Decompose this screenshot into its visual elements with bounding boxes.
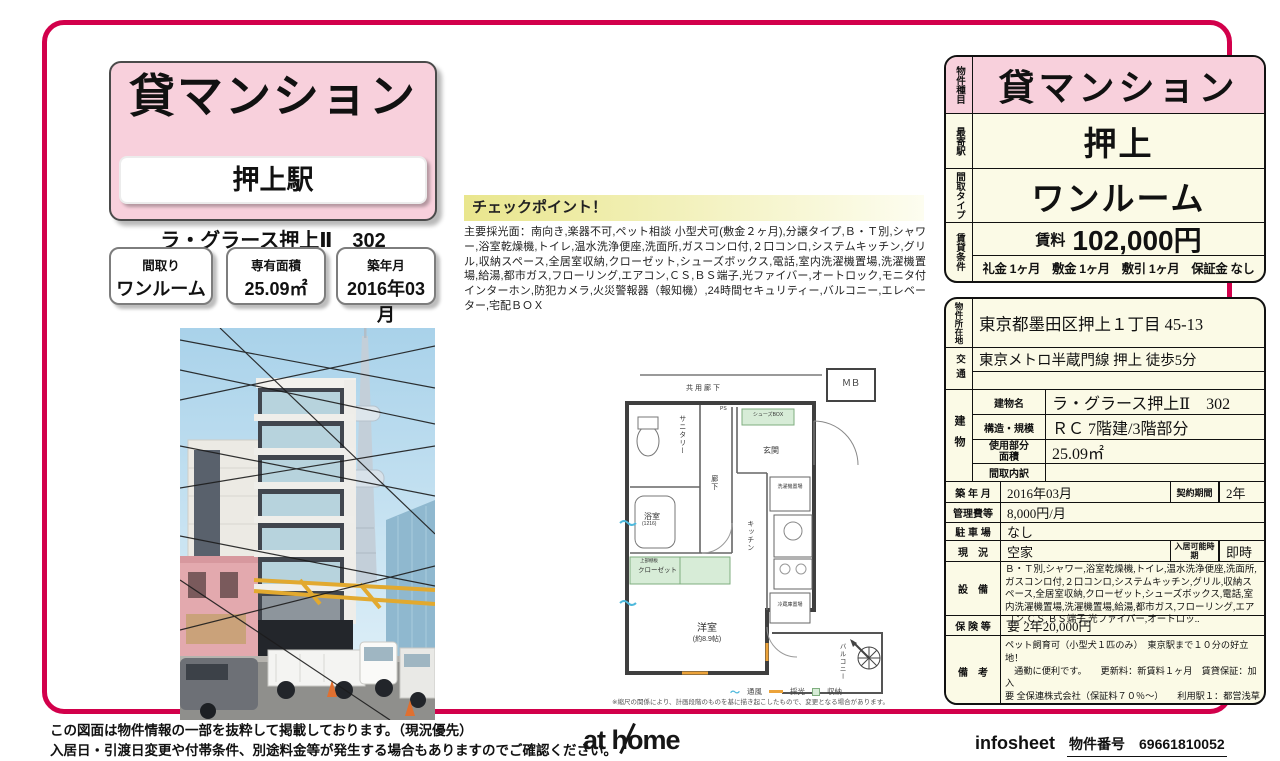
- row-label: 建物: [946, 390, 973, 481]
- fp-room-size-label: (約8.9帖): [677, 636, 737, 644]
- fp-fridge-label: 冷蔵庫置場: [771, 603, 809, 609]
- row-label: 賃貸条件: [946, 223, 973, 281]
- checkpoint-title: チェックポイント！: [464, 195, 924, 221]
- row-status: 現 況 空家 入居可能時期 即時: [946, 540, 1264, 561]
- content-frame: 貸マンション 押上駅 ラ・グラース押上Ⅱ 302 間取り ワンルーム 専有面積 …: [42, 20, 1232, 714]
- fp-shoebox-label: シューズBOX: [744, 413, 792, 419]
- athome-logo: at home: [583, 725, 680, 756]
- building-photo-art: [180, 328, 435, 720]
- spec-label: 専有面積: [228, 255, 324, 274]
- spec-box-area: 専有面積 25.09㎡: [226, 247, 326, 305]
- row-label: 交通: [946, 348, 973, 389]
- spec-box-layout: 間取り ワンルーム: [109, 247, 213, 305]
- property-number: 物件番号 69661810052: [1067, 734, 1227, 757]
- row-property-type: 物件種目 貸マンション: [946, 57, 1264, 113]
- fp-note: ※縮尺の関係により、計画段階のものを基に描き起こしたもので、変更となる場合があり…: [612, 696, 900, 706]
- rent-line: 賃料 102,000円: [973, 223, 1264, 255]
- structure-value: ＲＣ 7階建/3階部分: [1046, 415, 1264, 439]
- rent-value: 102,000円: [1072, 219, 1201, 259]
- row-label: 最寄駅: [946, 114, 973, 168]
- contract-value: 2年: [1219, 482, 1264, 502]
- terms-value: 礼金 1ヶ月 敷金 1ヶ月 敷引 1ヶ月 保証金 なし: [973, 255, 1264, 280]
- floorplan-drawing: [582, 355, 902, 707]
- infosheet-line: infosheet 物件番号 69661810052: [975, 733, 1227, 757]
- spec-value: 25.09㎡: [228, 275, 324, 301]
- location-value: 東京都墨田区押上１丁目 45-13: [973, 299, 1203, 347]
- insurance-value: 要 2年20,000円: [1001, 616, 1264, 635]
- daylight-icon: [769, 690, 783, 693]
- fp-bath-size-label: (1216): [642, 522, 656, 528]
- row-equipment: 設 備 Ｂ・Ｔ別,シャワー,浴室乾燥機,トイレ,温水洗浄便座,洗面所,ガスコンロ…: [946, 561, 1264, 615]
- movein-label: 入居可能時期: [1171, 541, 1219, 561]
- spec-value: ワンルーム: [111, 275, 211, 301]
- insurance-label: 保 険 等: [946, 616, 1001, 635]
- remarks-value: ペット飼育可（小型犬１匹のみ） 東京駅まで１０分の好立地！ 通勤に便利です。 更…: [1001, 636, 1264, 705]
- row-layout-type: 間取タイプ ワンルーム: [946, 168, 1264, 222]
- layout-detail-value: [1046, 464, 1264, 481]
- spec-label: 築年月: [338, 255, 434, 274]
- parking-value: なし: [1001, 523, 1264, 540]
- row-rental-terms: 賃貸条件 賃料 102,000円 礼金 1ヶ月 敷金 1ヶ月 敷引 1ヶ月 保証…: [946, 222, 1264, 281]
- row-label: 物件所在地: [946, 299, 973, 347]
- equipment-value: Ｂ・Ｔ別,シャワー,浴室乾燥機,トイレ,温水洗浄便座,洗面所,ガスコンロ付,２口…: [1001, 562, 1264, 615]
- area-value: 25.09㎡: [1046, 440, 1264, 463]
- building-name-value: ラ・グラース押上Ⅱ 302: [1046, 390, 1264, 414]
- movein-value: 即時: [1219, 541, 1264, 561]
- spec-value: 2016年03月: [338, 275, 434, 327]
- checkpoint-body: 主要採光面：南向き,楽器不可,ペット相談 小型犬可(敷金２ヶ月),分譲タイプ,Ｂ…: [464, 225, 926, 314]
- structure-label: 構造・規模: [973, 415, 1046, 439]
- remarks-label: 備 考: [946, 636, 1001, 705]
- property-type-title: 貸マンション: [111, 70, 435, 122]
- transport-value-1: 東京メトロ半蔵門線 押上 徒歩5分: [973, 348, 1264, 371]
- fp-closet-upper-label: 上部棚板: [640, 559, 658, 564]
- transport-value-2: [973, 372, 1264, 389]
- row-mgmt-fee: 管理費等 8,000円/月: [946, 502, 1264, 522]
- fp-entrance-label: 玄関: [763, 447, 779, 456]
- property-number-value: 69661810052: [1139, 736, 1225, 752]
- row-label: 間取タイプ: [946, 169, 973, 222]
- building-name-label: 建物名: [973, 390, 1046, 414]
- fp-laundry-label: 洗濯機置場: [771, 485, 809, 491]
- contract-label: 契約期間: [1171, 482, 1219, 502]
- row-built: 築 年 月 2016年03月 契約期間 2年: [946, 481, 1264, 502]
- station-banner: 押上駅: [119, 156, 427, 204]
- spec-label: 間取り: [111, 255, 211, 274]
- property-number-label: 物件番号: [1069, 736, 1125, 752]
- spec-box-built: 築年月 2016年03月: [336, 247, 436, 305]
- building-photo: [180, 328, 435, 720]
- row-parking: 駐 車 場 なし: [946, 522, 1264, 540]
- detail-table: 物件所在地 東京都墨田区押上１丁目 45-13 交通 東京メトロ半蔵門線 押上 …: [944, 297, 1266, 705]
- fp-sanitary-label: サニタリー: [678, 415, 686, 455]
- row-building: 建物 建物名 ラ・グラース押上Ⅱ 302 構造・規模 ＲＣ 7階建/3階部分 使…: [946, 389, 1264, 481]
- built-label: 築 年 月: [946, 482, 1001, 502]
- built-value: 2016年03月: [1001, 482, 1171, 502]
- fp-closet-label: クローゼット: [638, 567, 677, 574]
- storage-icon: [812, 688, 820, 696]
- fp-kitchen-label: キッチン: [746, 520, 754, 552]
- row-nearest-station: 最寄駅 押上: [946, 113, 1264, 168]
- equipment-label: 設 備: [946, 562, 1001, 615]
- layout-detail-label: 間取内訳: [973, 464, 1046, 481]
- footer-disclaimer: この図面は物件情報の一部を抜粋して掲載しております。（現況優先） 入居日・引渡日…: [50, 721, 617, 760]
- fp-mb-label: ＭＢ: [827, 379, 875, 389]
- disclaimer-line-2: 入居日・引渡日変更や付帯条件、別途料金等が発生する場合もありますのでご確認くださ…: [50, 741, 617, 761]
- infosheet-wordmark: infosheet: [975, 733, 1055, 754]
- mgmt-label: 管理費等: [946, 503, 1001, 522]
- layout-value: ワンルーム: [973, 169, 1264, 222]
- fp-room-label: 洋室: [677, 623, 737, 634]
- row-label: 物件種目: [946, 57, 973, 113]
- area-label: 使用部分面積: [973, 440, 1046, 463]
- summary-table: 物件種目 貸マンション 最寄駅 押上 間取タイプ ワンルーム 賃貸条件 賃料 1…: [944, 55, 1266, 283]
- status-value: 空家: [1001, 541, 1171, 561]
- mgmt-value: 8,000円/月: [1001, 503, 1264, 522]
- row-remarks: 備 考 ペット飼育可（小型犬１匹のみ） 東京駅まで１０分の好立地！ 通勤に便利で…: [946, 635, 1264, 705]
- station-value: 押上: [973, 114, 1264, 168]
- fp-balcony-label: バルコニー: [838, 643, 845, 681]
- floorplan: 共用廊下 ＭＢ サニタリー 玄関 シューズBOX 浴室 (1216) 廊下 キッ…: [582, 355, 902, 707]
- status-label: 現 況: [946, 541, 1001, 561]
- property-type-value: 貸マンション: [973, 57, 1264, 113]
- property-type-banner: 貸マンション 押上駅: [109, 61, 437, 221]
- fp-ps-label: PS: [720, 407, 727, 413]
- fp-hall-label: 廊下: [710, 475, 718, 491]
- rent-label: 賃料: [1035, 229, 1065, 250]
- disclaimer-line-1: この図面は物件情報の一部を抜粋して掲載しております。（現況優先）: [50, 721, 617, 741]
- parking-label: 駐 車 場: [946, 523, 1001, 540]
- fp-common-corridor-label: 共用廊下: [686, 385, 722, 393]
- row-transport: 交通 東京メトロ半蔵門線 押上 徒歩5分: [946, 347, 1264, 389]
- row-location: 物件所在地 東京都墨田区押上１丁目 45-13: [946, 299, 1264, 347]
- row-insurance: 保 険 等 要 2年20,000円: [946, 615, 1264, 635]
